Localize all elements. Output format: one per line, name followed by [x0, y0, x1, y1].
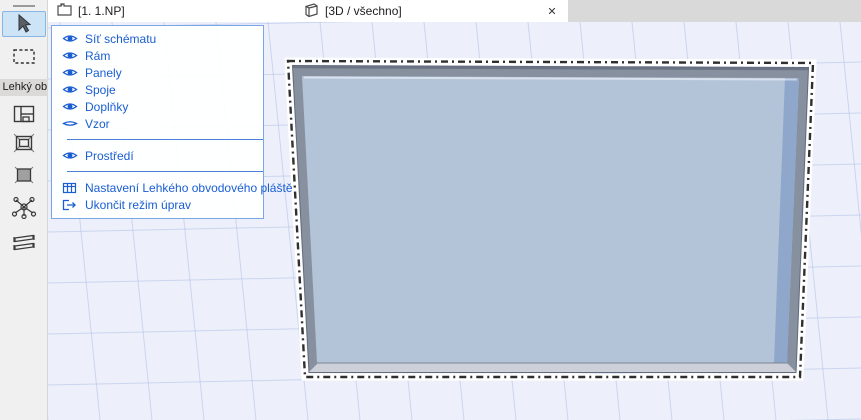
menu-item-scheme-grid[interactable]: Síť schématu: [52, 30, 263, 47]
marquee-icon: [12, 48, 36, 66]
cube-3d-icon: [303, 2, 320, 21]
accessory-icon: [11, 233, 37, 253]
menu-item-label: Rám: [85, 49, 110, 63]
eye-open-icon: [61, 50, 78, 62]
menu-item-accessories[interactable]: Doplňky: [52, 98, 263, 115]
menu-item-label: Nastavení Lehkého obvodového pláště: [85, 181, 293, 195]
panel-tool-button[interactable]: [2, 163, 46, 187]
arrow-cursor-icon: [13, 13, 35, 35]
menu-item-environment[interactable]: Prostředí: [52, 147, 263, 164]
curtain-wall-edit-menu: Síť schématu Rám Panely Spoje Doplňky: [51, 25, 264, 219]
menu-item-junctions[interactable]: Spoje: [52, 81, 263, 98]
menu-item-label: Doplňky: [85, 100, 128, 114]
eye-closed-icon: [61, 118, 78, 130]
menu-item-curtain-wall-settings[interactable]: Nastavení Lehkého obvodového pláště: [52, 179, 263, 196]
menu-item-label: Síť schématu: [85, 32, 156, 46]
scheme-grid-tool-button[interactable]: [2, 102, 46, 126]
menu-item-label: Spoje: [85, 83, 116, 97]
frame-icon: [12, 132, 36, 154]
junction-icon: [11, 195, 37, 219]
menu-item-label: Ukončit režim úprav: [85, 198, 191, 212]
eye-open-icon: [61, 33, 78, 45]
menu-item-frames[interactable]: Rám: [52, 47, 263, 64]
curtain-wall-section-label: Lehký ob: [0, 79, 48, 96]
tab-floor-plan[interactable]: [1. 1.NP]: [56, 0, 125, 22]
tab-floor-plan-label: [1. 1.NP]: [78, 4, 125, 18]
tab-3d-all-label: [3D / všechno]: [325, 4, 402, 18]
frame-tool-button[interactable]: [2, 131, 46, 155]
panel-icon: [12, 164, 36, 186]
close-icon: ✕: [547, 5, 556, 18]
eye-open-icon: [61, 67, 78, 79]
menu-divider: [67, 171, 263, 172]
accessory-tool-button[interactable]: [2, 231, 46, 255]
eye-open-icon: [61, 101, 78, 113]
tab-white-area: [1. 1.NP] [3D / všechno] ✕: [48, 0, 568, 22]
arrow-tool-button[interactable]: [2, 11, 46, 37]
menu-divider: [67, 139, 263, 140]
palette-drag-handle[interactable]: [13, 5, 35, 7]
tab-3d-all[interactable]: [3D / všechno]: [303, 0, 402, 22]
tab-close-button[interactable]: ✕: [542, 1, 562, 21]
junction-tool-button[interactable]: [2, 195, 46, 219]
menu-item-panels[interactable]: Panely: [52, 64, 263, 81]
settings-table-icon: [61, 182, 78, 194]
menu-item-pattern[interactable]: Vzor: [52, 115, 263, 132]
curtain-wall-object[interactable]: [288, 61, 813, 377]
menu-item-exit-edit-mode[interactable]: Ukončit režim úprav: [52, 196, 263, 213]
scheme-grid-icon: [12, 104, 36, 124]
menu-item-label: Prostředí: [85, 149, 134, 163]
floor-plan-tab-icon: [56, 2, 73, 20]
eye-open-icon: [61, 84, 78, 96]
menu-item-label: Vzor: [85, 117, 110, 131]
view-tab-bar: [1. 1.NP] [3D / všechno] ✕: [48, 0, 861, 22]
eye-open-icon: [61, 150, 78, 162]
tool-palette: Lehký ob: [0, 0, 48, 420]
menu-item-label: Panely: [85, 66, 122, 80]
marquee-tool-button[interactable]: [2, 45, 46, 69]
exit-icon: [61, 199, 78, 211]
